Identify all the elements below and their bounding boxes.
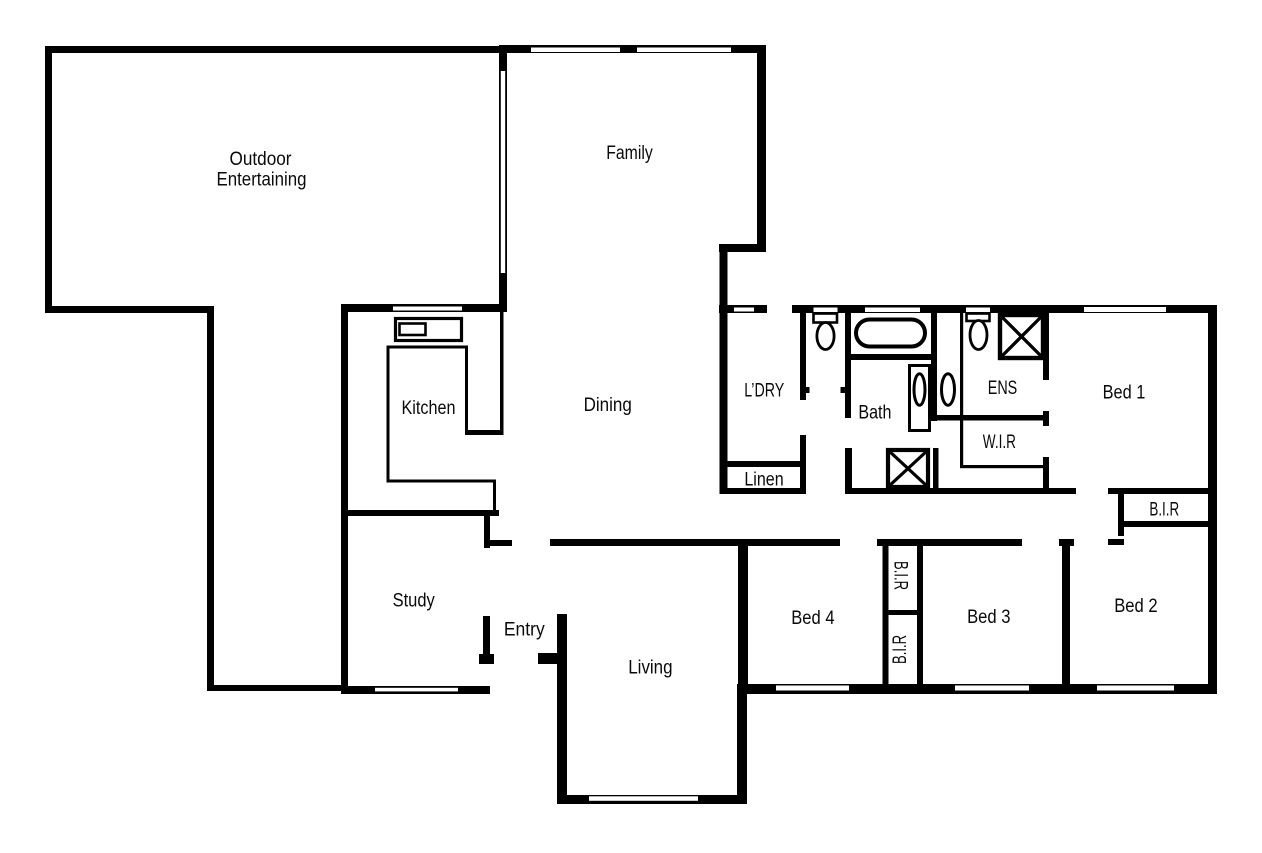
svg-text:Bath: Bath <box>858 403 891 424</box>
svg-text:Study: Study <box>393 591 436 612</box>
svg-text:W.I.R: W.I.R <box>983 432 1016 453</box>
svg-text:Bed 4: Bed 4 <box>791 608 835 629</box>
svg-text:Bed 1: Bed 1 <box>1103 382 1146 403</box>
svg-text:Dining: Dining <box>584 395 632 416</box>
svg-text:B.I.R: B.I.R <box>890 561 911 590</box>
svg-text:Entertaining: Entertaining <box>217 170 307 191</box>
svg-text:B.I.R: B.I.R <box>890 635 911 664</box>
svg-text:Linen: Linen <box>744 470 783 491</box>
svg-text:B.I.R: B.I.R <box>1149 499 1179 520</box>
svg-text:Bed 2: Bed 2 <box>1114 596 1157 617</box>
svg-text:ENS: ENS <box>988 378 1018 399</box>
svg-text:Bed 3: Bed 3 <box>967 607 1010 628</box>
svg-text:Family: Family <box>606 143 653 164</box>
svg-text:Living: Living <box>628 657 672 678</box>
svg-text:L’DRY: L’DRY <box>744 381 784 402</box>
svg-text:Entry: Entry <box>504 620 545 641</box>
svg-text:Outdoor: Outdoor <box>230 149 293 170</box>
svg-text:Kitchen: Kitchen <box>402 398 456 419</box>
